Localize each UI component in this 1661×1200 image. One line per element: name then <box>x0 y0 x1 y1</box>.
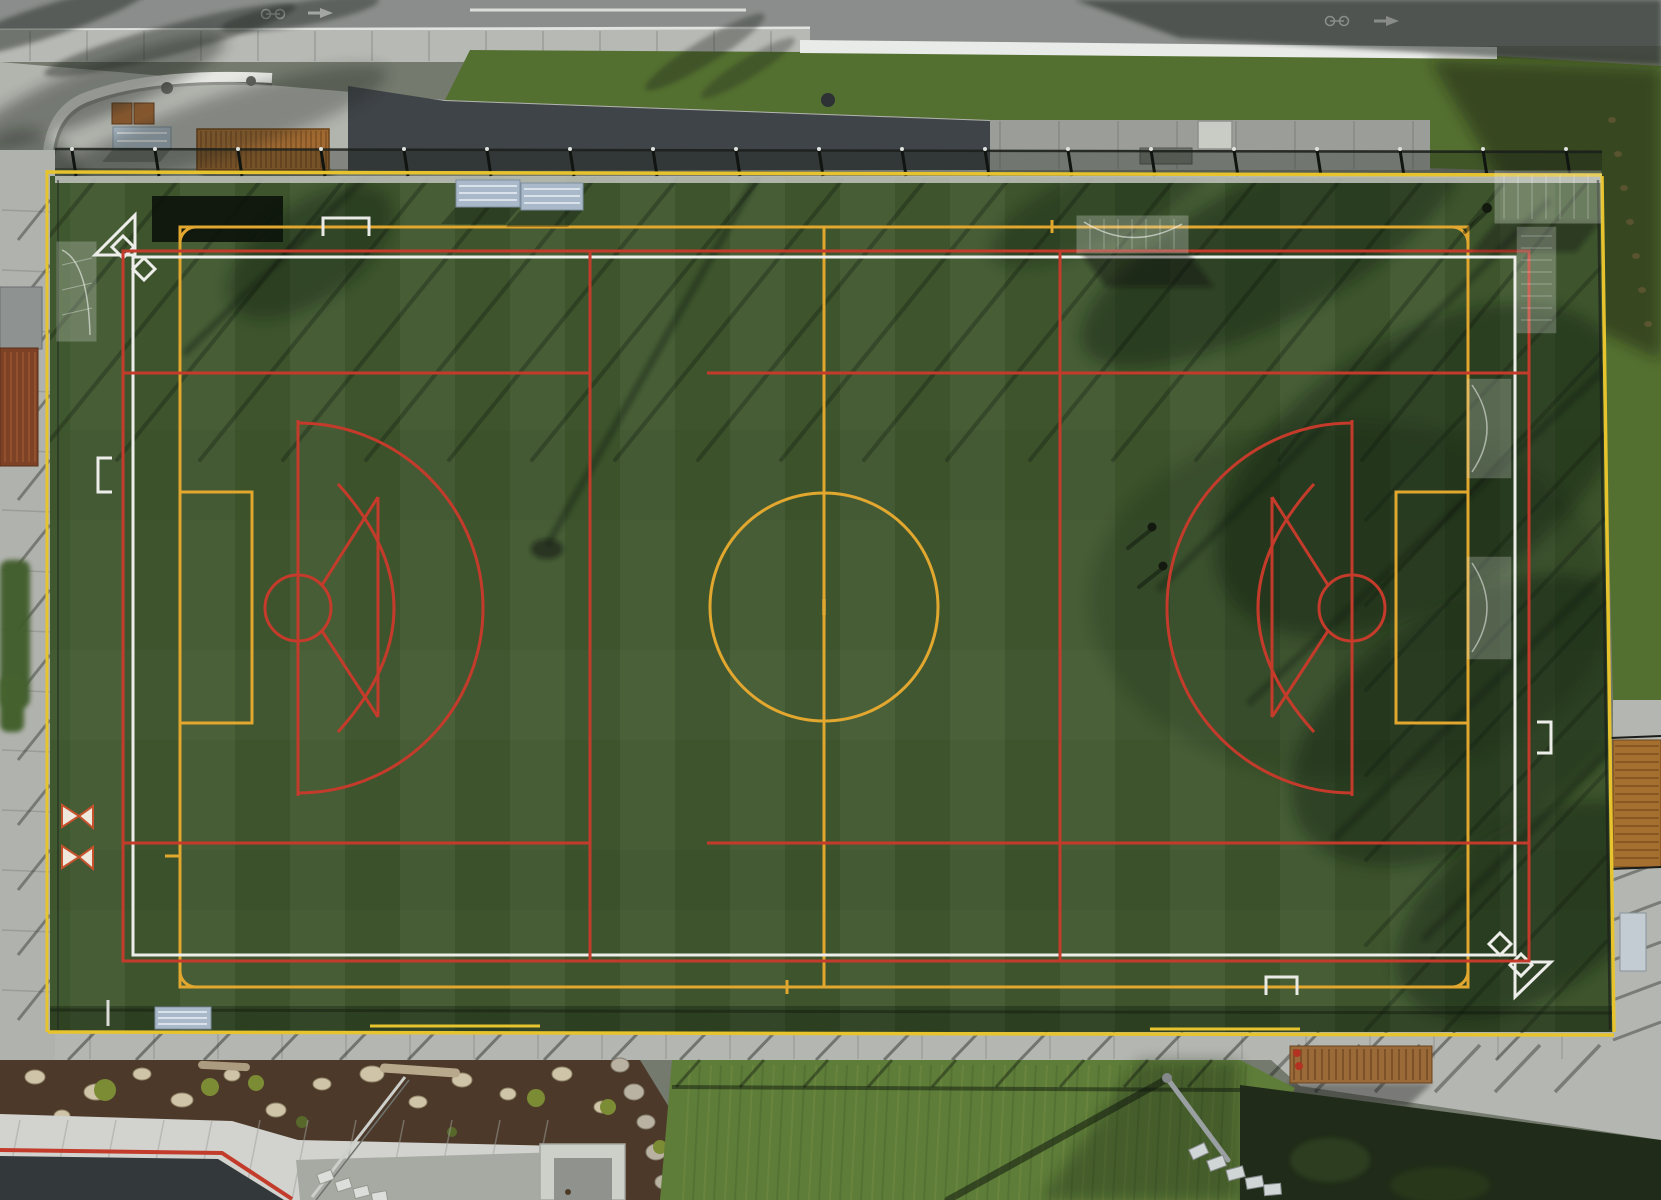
boulder <box>266 1103 286 1117</box>
hedge <box>0 676 24 732</box>
lacrosse-goal <box>1468 558 1510 658</box>
floodlight-head <box>1245 1176 1264 1190</box>
fence-post-cap <box>319 147 323 151</box>
fence-post-cap <box>1149 147 1153 151</box>
fence-post-cap <box>1232 147 1236 151</box>
fence-post-cap <box>1398 147 1402 151</box>
fence-post-cap <box>402 147 406 151</box>
person <box>1482 203 1492 213</box>
red-gear-bag <box>1293 1049 1301 1057</box>
pole-base <box>1162 1073 1172 1083</box>
fence-post-cap <box>983 147 987 151</box>
fence-mesh-band <box>55 150 1602 174</box>
courtyard <box>296 1152 564 1200</box>
fence-post-cap <box>1564 147 1568 151</box>
lacrosse-goal <box>1468 380 1510 477</box>
boulder <box>224 1069 240 1081</box>
bush <box>201 1078 219 1096</box>
lit-grass-patch <box>1290 1138 1370 1182</box>
wood-deck <box>1613 740 1661 867</box>
fence-post-cap <box>236 147 240 151</box>
roof-inner <box>554 1158 612 1200</box>
boulder <box>313 1078 331 1090</box>
rock-spine <box>637 1115 655 1129</box>
fence-post-cap <box>568 147 572 151</box>
bush <box>248 1075 264 1091</box>
east-bench <box>1620 913 1646 971</box>
boulder <box>500 1088 516 1100</box>
fence-post-cap <box>1481 147 1485 151</box>
person <box>1159 562 1168 571</box>
fence-post-cap <box>900 147 904 151</box>
fence-post-cap <box>70 147 74 151</box>
bush <box>94 1079 116 1101</box>
road-edge-line <box>0 28 810 30</box>
fence-post-cap <box>651 147 655 151</box>
bush <box>527 1089 545 1107</box>
fence-post-cap <box>817 147 821 151</box>
boulder <box>171 1093 193 1107</box>
curb-strip <box>55 176 1602 183</box>
red-gear-bag <box>1295 1062 1303 1070</box>
fence-curb <box>55 176 1602 183</box>
aerial-scene-canvas <box>0 0 1661 1200</box>
lacrosse-goal <box>1518 228 1555 332</box>
utility-dot <box>821 93 835 107</box>
floodlight-head <box>1264 1183 1282 1195</box>
boulder <box>409 1096 427 1108</box>
person <box>1148 523 1157 532</box>
fence-post-cap <box>1066 147 1070 151</box>
grey-structure <box>0 287 42 349</box>
aerial-photo-multisport-field <box>0 0 1661 1200</box>
fence-post-cap <box>485 147 489 151</box>
soccer-goal-top-right <box>1496 172 1600 222</box>
tree-pit <box>246 76 256 86</box>
fence-post-cap <box>1315 147 1319 151</box>
fence-post-cap <box>153 147 157 151</box>
drone-shadow <box>531 539 563 559</box>
boulder <box>133 1068 151 1080</box>
fence-post-cap <box>734 147 738 151</box>
bush <box>600 1099 616 1115</box>
rock-spine <box>611 1058 629 1072</box>
wood-bench-long <box>1290 1046 1432 1083</box>
south-grass <box>660 1060 1295 1200</box>
roof-hatch <box>565 1189 571 1195</box>
boulder <box>552 1067 572 1081</box>
rock-spine <box>624 1084 644 1100</box>
boulder <box>25 1070 45 1084</box>
utility-vault <box>1198 121 1232 149</box>
